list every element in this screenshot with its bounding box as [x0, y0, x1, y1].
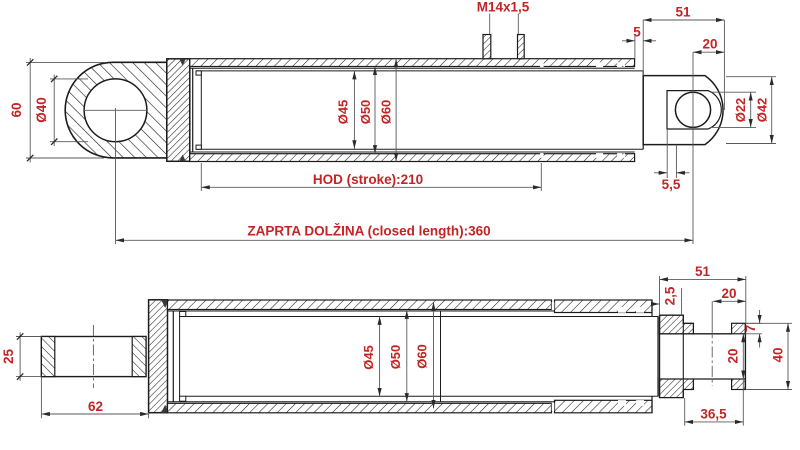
- svg-text:20: 20: [726, 348, 741, 363]
- svg-text:51: 51: [675, 5, 691, 20]
- svg-text:Ø50: Ø50: [358, 100, 373, 125]
- svg-text:M14x1,5: M14x1,5: [477, 0, 530, 15]
- svg-text:60: 60: [9, 102, 24, 117]
- svg-text:25: 25: [1, 349, 16, 365]
- svg-text:2,5: 2,5: [663, 286, 678, 305]
- svg-text:Ø22: Ø22: [733, 98, 748, 123]
- svg-text:Ø60: Ø60: [415, 344, 430, 369]
- svg-text:HOD (stroke):210: HOD (stroke):210: [313, 172, 423, 187]
- svg-text:5,5: 5,5: [662, 177, 681, 192]
- svg-text:Ø45: Ø45: [361, 345, 376, 370]
- svg-text:Ø50: Ø50: [388, 345, 403, 370]
- svg-text:ZAPRTA DOLŽINA (closed length): ZAPRTA DOLŽINA (closed length):360: [247, 224, 490, 239]
- svg-text:Ø60: Ø60: [379, 100, 394, 125]
- svg-text:20: 20: [721, 286, 736, 301]
- svg-text:62: 62: [88, 399, 103, 414]
- svg-text:36,5: 36,5: [700, 407, 727, 422]
- svg-text:5: 5: [633, 25, 641, 40]
- svg-text:Ø42: Ø42: [755, 98, 770, 123]
- svg-text:Ø40: Ø40: [34, 97, 49, 123]
- svg-text:51: 51: [695, 264, 711, 279]
- svg-text:20: 20: [702, 37, 717, 52]
- svg-text:40: 40: [771, 347, 786, 362]
- svg-text:7: 7: [743, 325, 758, 333]
- svg-text:Ø45: Ø45: [336, 100, 351, 125]
